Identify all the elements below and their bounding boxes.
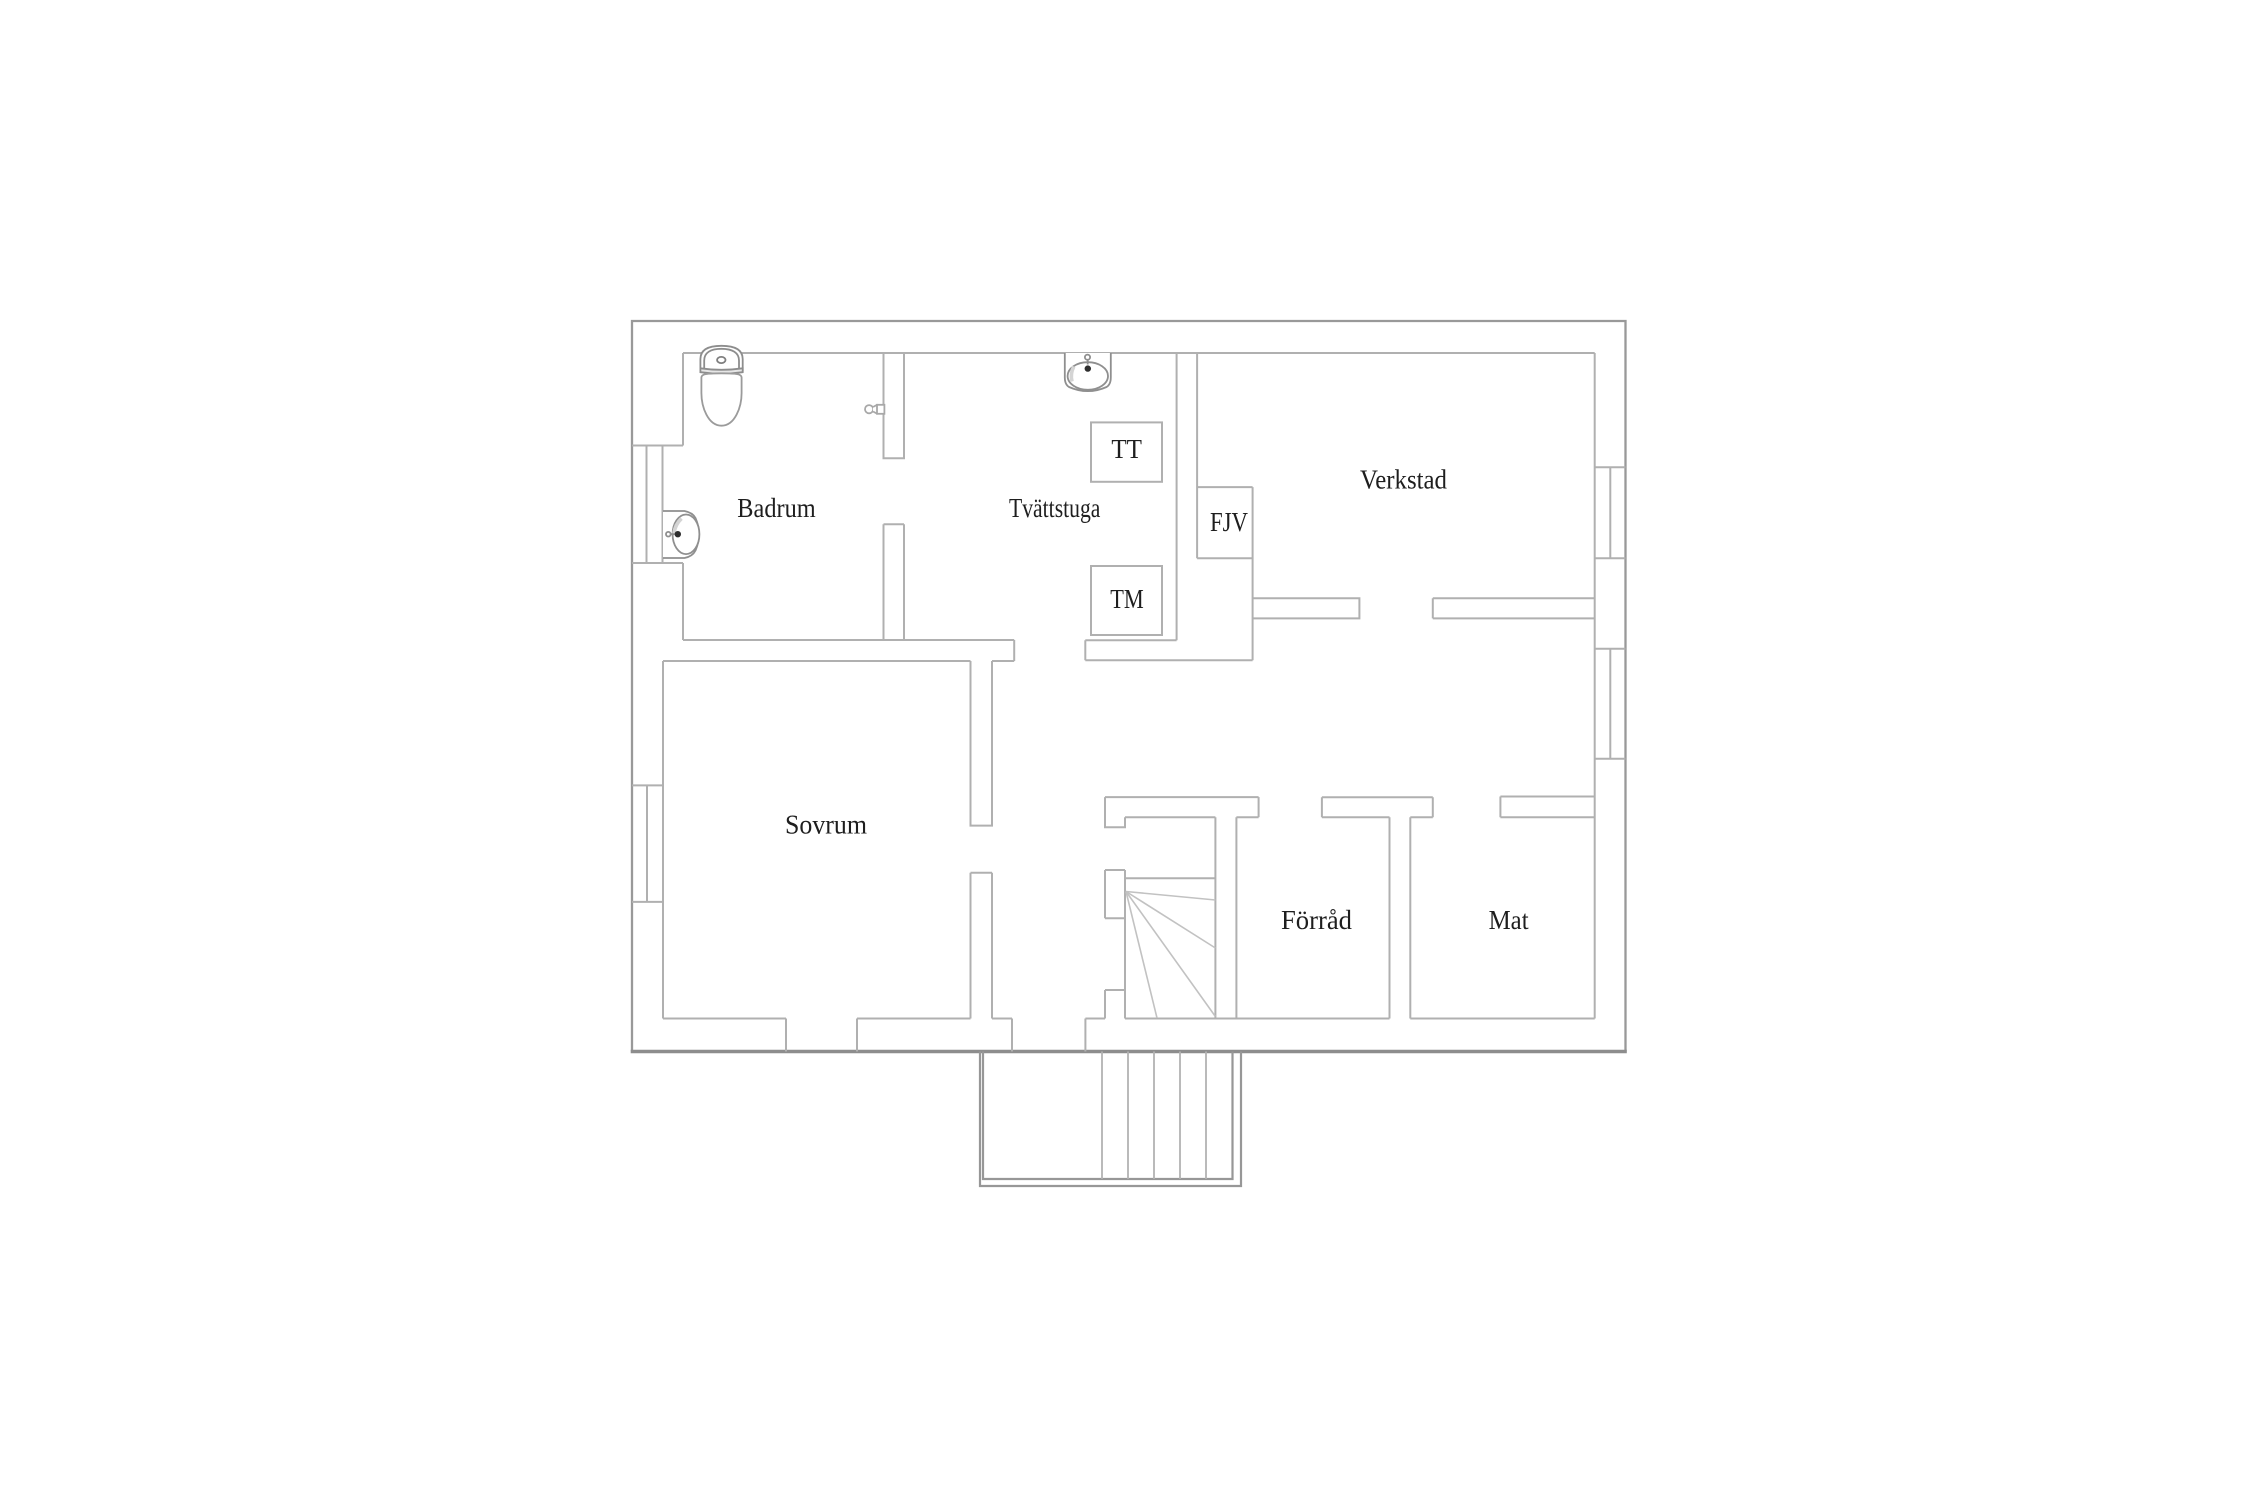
svg-text:TT: TT	[1111, 434, 1142, 464]
svg-text:Tvättstuga: Tvättstuga	[1009, 493, 1100, 523]
svg-text:Mat: Mat	[1489, 905, 1529, 935]
svg-text:TM: TM	[1110, 584, 1144, 614]
svg-text:Badrum: Badrum	[737, 493, 815, 523]
svg-text:FJV: FJV	[1210, 507, 1248, 537]
svg-text:Verkstad: Verkstad	[1360, 465, 1447, 495]
svg-text:Förråd: Förråd	[1281, 905, 1352, 935]
svg-text:Sovrum: Sovrum	[785, 810, 867, 840]
